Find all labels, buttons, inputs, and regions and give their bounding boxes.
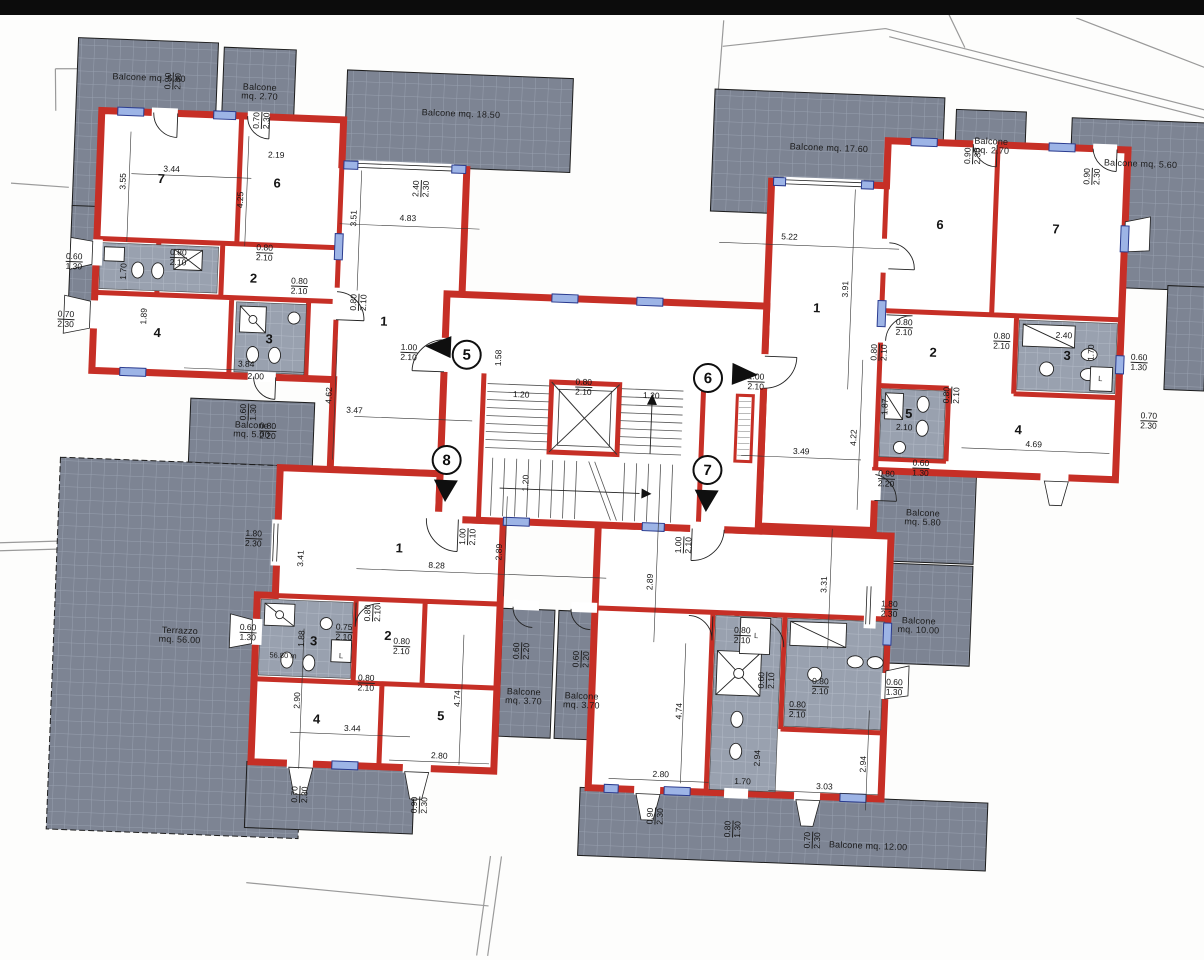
scanned-floor-plan: Balcone mq. 5.60Balconemq. 2.70Balcone m…	[0, 0, 1204, 960]
riser-count-strip	[735, 395, 754, 462]
balcony-3-70-a	[498, 608, 555, 738]
plan-canvas: Balcone mq. 5.60Balconemq. 2.70Balcone m…	[0, 0, 1204, 960]
balcony-5-00	[188, 398, 314, 467]
balcony-strip-bottom-left	[244, 762, 414, 834]
balcony-18-50	[344, 70, 573, 173]
floor-plan-drawing	[0, 0, 1204, 960]
scan-artifact-strip	[0, 0, 1204, 15]
